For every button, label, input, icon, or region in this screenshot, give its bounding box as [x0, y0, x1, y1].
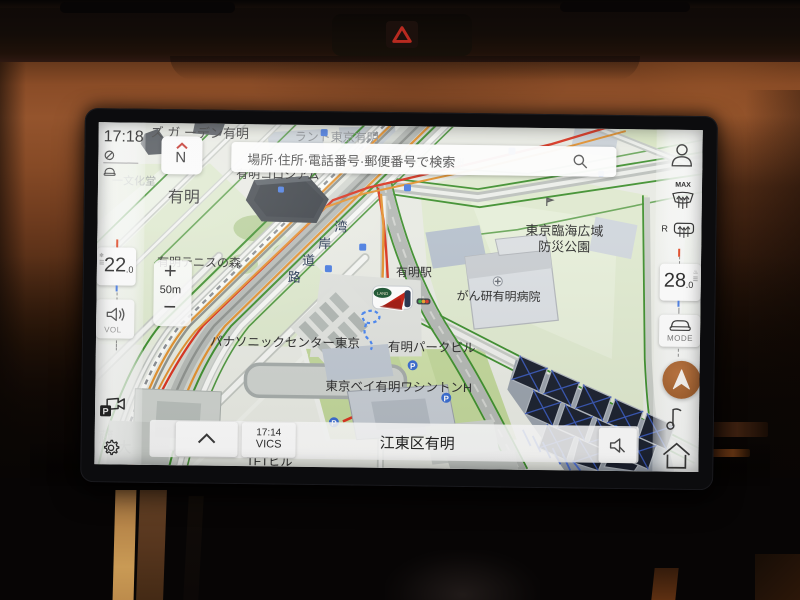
svg-text:有明: 有明: [168, 188, 200, 206]
svg-text:LAND: LAND: [377, 291, 388, 296]
svg-text:P: P: [443, 394, 449, 403]
svg-text:P: P: [102, 406, 108, 416]
svg-text:岸: 岸: [318, 236, 331, 251]
svg-text:東京臨海広域: 東京臨海広域: [525, 223, 603, 239]
svg-text:防災公園: 防災公園: [538, 239, 590, 255]
svg-text:がん研有明病院: がん研有明病院: [456, 288, 540, 304]
svg-text:パナソニックセンター東京: パナソニックセンター東京: [210, 335, 360, 351]
svg-text:有明駅: 有明駅: [396, 265, 432, 279]
svg-text:P: P: [410, 362, 416, 371]
svg-text:路: 路: [288, 270, 301, 285]
svg-text:湾: 湾: [334, 219, 347, 234]
svg-text:東京ベイ有明ワシントンH: 東京ベイ有明ワシントンH: [325, 379, 472, 395]
svg-text:有明パークビル: 有明パークビル: [388, 340, 476, 355]
svg-text:道: 道: [302, 253, 315, 268]
